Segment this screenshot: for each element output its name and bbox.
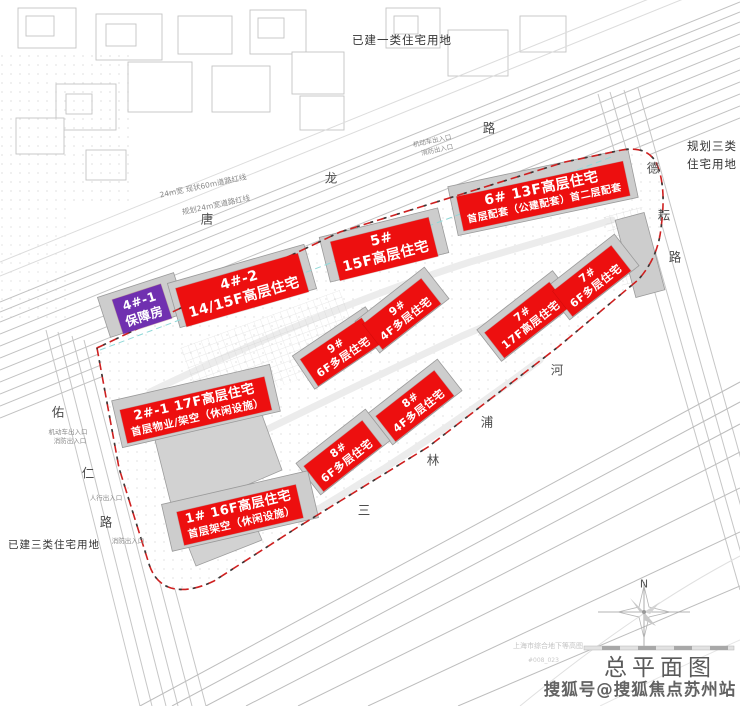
site-plan: 已建一类住宅用地 规划三类 住宅用地 已建三类住宅用地 唐龙路佑仁路德耘路三林浦…	[0, 0, 740, 706]
zone-label-southwest: 已建三类住宅用地	[8, 537, 100, 552]
plan-linework	[0, 0, 740, 706]
watermark-text: 搜狐号@搜狐焦点苏州站	[544, 676, 737, 700]
zone-label-east-line2: 住宅用地	[687, 157, 737, 171]
archive-note: 上海市综合地下等高图	[513, 641, 583, 651]
zone-label-east: 规划三类 住宅用地	[687, 138, 739, 174]
dot-hatch-nw	[0, 55, 130, 205]
dot-hatch-w	[0, 205, 70, 325]
zone-label-north: 已建一类住宅用地	[352, 32, 452, 48]
north-letter: N	[640, 578, 648, 591]
zone-label-east-line1: 规划三类	[687, 139, 737, 153]
archive-code: #008_023	[528, 657, 559, 664]
